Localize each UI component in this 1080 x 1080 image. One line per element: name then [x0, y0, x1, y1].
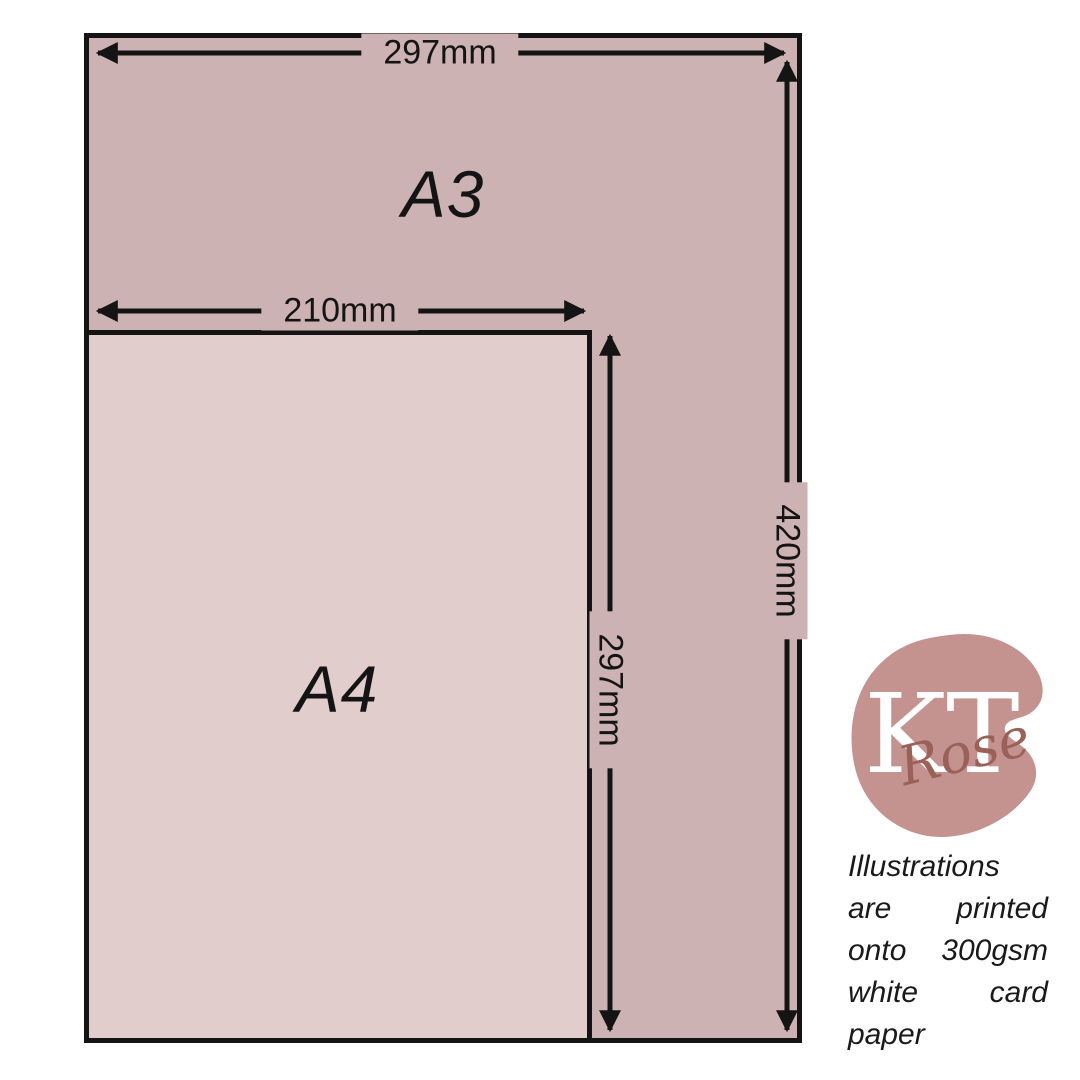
a4-height-label: 297mm [590, 611, 631, 768]
a3-width-label: 297mm [361, 34, 518, 73]
a3-title: A3 [402, 156, 485, 232]
a3-height-label: 420mm [767, 482, 808, 639]
a4-title: A4 [296, 651, 379, 727]
footer-note: Illustrations are printed onto 300gsm wh… [848, 846, 1048, 1056]
kt-rose-logo: KT Rose [848, 633, 1050, 841]
a4-width-label: 210mm [261, 292, 418, 331]
paper-size-diagram: 297mm 210mm 420mm 297mm A3 A4 KT Rose Il… [0, 0, 1080, 1080]
